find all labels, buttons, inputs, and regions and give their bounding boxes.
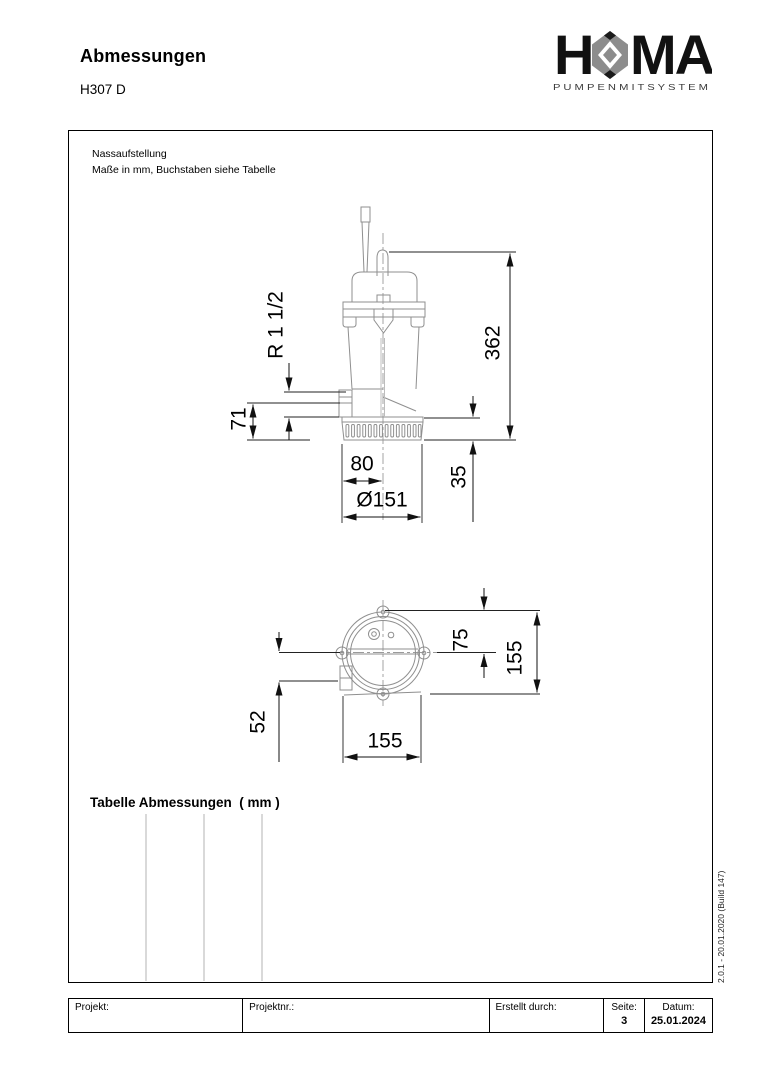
project-no-label: Projektnr.: <box>249 1002 294 1013</box>
dim-label-total-height: 362 <box>483 325 504 360</box>
date-value: 25.01.2024 <box>651 1015 706 1027</box>
footer-title-block: Projekt: Projektnr.: Erstellt durch: Sei… <box>68 998 713 1033</box>
pump-front-view-drawing <box>339 207 425 440</box>
project-label: Projekt: <box>75 1002 109 1013</box>
dim-label-diameter: Ø151 <box>356 490 407 511</box>
footer-cell-created-by: Erstellt durch: <box>489 999 604 1032</box>
dim-label-outlet-offset: 52 <box>248 710 269 733</box>
footer-cell-project-no: Projektnr.: <box>242 999 488 1032</box>
dim-label-thread: R 1 1/2 <box>266 291 287 359</box>
created-by-label: Erstellt durch: <box>496 1002 557 1013</box>
page-label: Seite: <box>606 1002 642 1013</box>
date-label: Datum: <box>651 1002 706 1013</box>
footer-cell-date: Datum: 25.01.2024 <box>644 999 712 1032</box>
dim-label-base-height: 35 <box>449 465 470 488</box>
footer-cell-page: Seite: 3 <box>603 999 644 1032</box>
centerlines <box>333 233 437 706</box>
page-number: 3 <box>606 1015 642 1027</box>
dim-label-center-offset: 75 <box>451 628 472 651</box>
table-column-rules <box>146 814 262 981</box>
strainer-slots <box>346 425 421 438</box>
dim-label-outlet-height: 71 <box>229 407 250 430</box>
dim-label-outlet-to-center: 80 <box>350 454 373 475</box>
dim-label-overall-width: 155 <box>367 731 402 752</box>
technical-drawing <box>0 0 763 1080</box>
footer-cell-project: Projekt: <box>69 999 242 1032</box>
dim-label-overall-height: 155 <box>505 640 526 675</box>
version-note: 2.0.1 - 20.01.2020 (Build 147) <box>716 871 726 983</box>
pump-top-view-drawing <box>336 606 430 700</box>
